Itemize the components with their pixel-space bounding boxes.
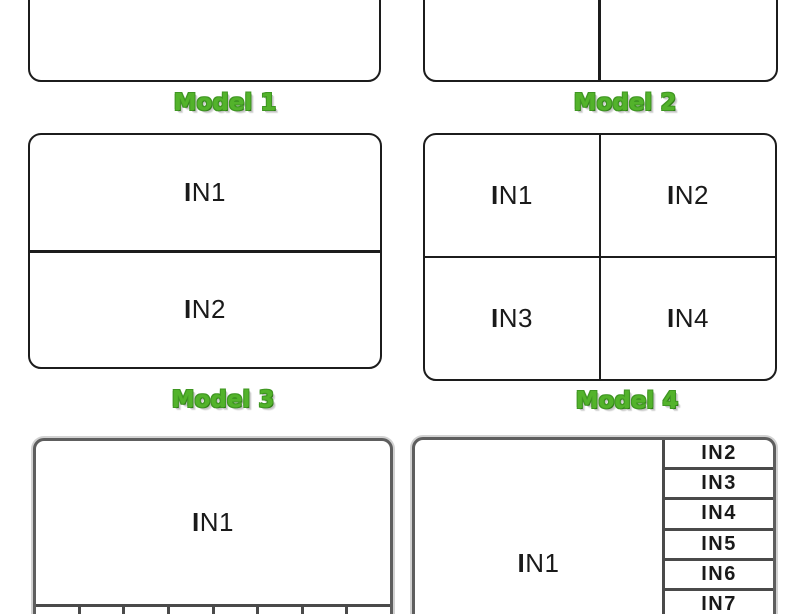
model-5-strip-cell (36, 607, 78, 614)
model-2-center-divider (598, 0, 601, 80)
input-label: IN7 (701, 593, 737, 614)
input-label: IN4 (701, 502, 737, 525)
model-5-cell-main: IN1 (36, 441, 390, 604)
input-label: IN5 (701, 533, 737, 556)
model-3-label: Model 3 (172, 387, 275, 413)
model-3-cell-bottom: IN2 (30, 250, 380, 368)
model-6-column-cell: IN6 (665, 561, 773, 591)
model-5-strip-cell (256, 607, 301, 614)
model-4-label: Model 4 (576, 388, 679, 414)
model-6-column-cell: IN7 (665, 591, 773, 614)
input-label: IN3 (491, 303, 533, 334)
model-6-column-cell: IN5 (665, 531, 773, 561)
model-3-cell-top: IN1 (30, 135, 380, 250)
model-5-strip-cell (167, 607, 212, 614)
input-label: IN1 (518, 548, 560, 579)
model-6-column-cell: IN2 (665, 440, 773, 470)
model-1-label: Model 1 (174, 90, 277, 116)
input-label: IN3 (701, 472, 737, 495)
model-6-column-cell: IN4 (665, 500, 773, 530)
model-3-screen: IN1 IN2 (28, 133, 382, 369)
model-5-strip-cell (301, 607, 346, 614)
model-2-screen (423, 0, 778, 82)
model-6-screen: IN1 IN2 IN3 IN4 IN5 IN6 IN7 (412, 437, 776, 614)
model-5-strip-cell (212, 607, 257, 614)
input-label: IN2 (667, 180, 709, 211)
model-4-cell-4: IN4 (600, 257, 775, 379)
model-6-cell-main: IN1 (415, 440, 662, 614)
model-5-screen: IN1 (33, 438, 393, 614)
input-label: IN2 (701, 442, 737, 465)
input-label: IN1 (192, 507, 234, 538)
model-6-column-cell: IN3 (665, 470, 773, 500)
model-6-right-column: IN2 IN3 IN4 IN5 IN6 IN7 (662, 440, 773, 614)
model-5-bottom-strip (36, 604, 390, 614)
model-4-screen: IN1 IN2 IN3 IN4 (423, 133, 777, 381)
input-label: IN2 (184, 294, 226, 325)
input-label: IN4 (667, 303, 709, 334)
input-label: IN6 (701, 563, 737, 586)
input-label: IN1 (184, 177, 226, 208)
model-2-label: Model 2 (574, 90, 677, 116)
model-4-cell-3: IN3 (425, 257, 600, 379)
model-5-strip-cell (122, 607, 167, 614)
layout-models-diagram: Model 1 Model 2 IN1 IN2 Model 3 IN1 IN2 … (0, 0, 800, 614)
input-label: IN1 (491, 180, 533, 211)
model-1-screen (28, 0, 381, 82)
model-4-cell-2: IN2 (600, 135, 775, 257)
model-5-strip-cell (78, 607, 123, 614)
model-5-strip-cell (345, 607, 390, 614)
model-4-cell-1: IN1 (425, 135, 600, 257)
